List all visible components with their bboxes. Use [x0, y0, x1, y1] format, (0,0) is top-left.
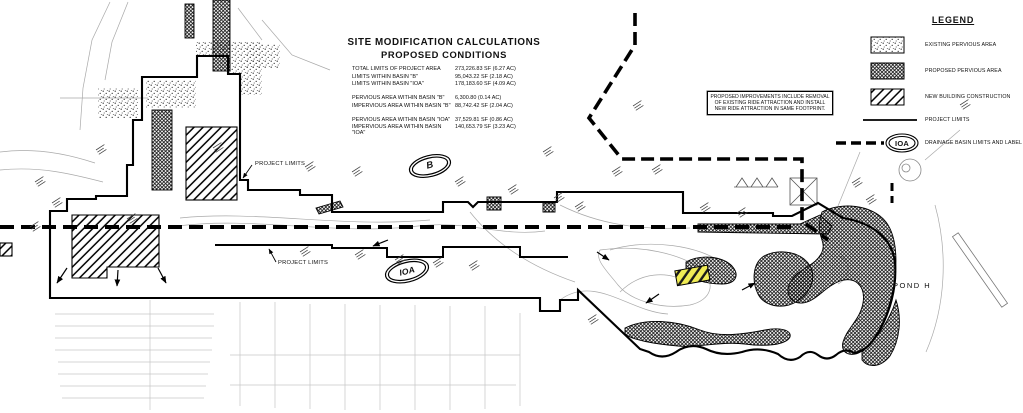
- legend-swatch-new-building: [871, 89, 904, 105]
- legend-title: LEGEND: [922, 15, 984, 25]
- legend-item-project-limits: PROJECT LIMITS: [925, 117, 970, 123]
- existing-pervious-areas: [98, 42, 280, 118]
- site-plan-drawing: [0, 0, 1023, 413]
- legend-item-drainage-basin: DRAINAGE BASIN LIMITS AND LABEL: [925, 140, 1022, 146]
- calc-label: PERVIOUS AREA WITHIN BASIN "B": [352, 95, 455, 101]
- legend-ioa-oval-label: IOA: [891, 139, 913, 148]
- legend-swatches: [836, 37, 918, 152]
- pond-h-label: POND H: [893, 281, 931, 290]
- project-limits-label-lower: PROJECT LIMITS: [278, 260, 328, 266]
- calc-label: LIMITS WITHIN BASIN "B": [352, 74, 455, 80]
- calc-row: IMPERVIOUS AREA WITHIN BASIN "IOA" 140,6…: [352, 124, 516, 136]
- project-limits-label-upper: PROJECT LIMITS: [255, 161, 305, 167]
- legend-item-existing-pervious: EXISTING PERVIOUS AREA: [925, 42, 996, 48]
- calc-value: 140,653.79 SF (3.23 AC): [455, 124, 516, 136]
- calc-row: PERVIOUS AREA WITHIN BASIN "IOA" 37,529.…: [352, 117, 513, 123]
- calc-value: 37,529.81 SF (0.86 AC): [455, 117, 513, 123]
- legend-swatch-proposed-pervious: [871, 63, 904, 79]
- calc-row: TOTAL LIMITS OF PROJECT AREA 273,226.83 …: [352, 66, 516, 72]
- calc-row: IMPERVIOUS AREA WITHIN BASIN "B" 88,742.…: [352, 103, 513, 109]
- calc-value: 178,183.60 SF (4.09 AC): [455, 81, 516, 87]
- site-plan-sheet: SITE MODIFICATION CALCULATIONS PROPOSED …: [0, 0, 1023, 413]
- project-limits-south-line: [215, 245, 568, 257]
- legend-item-proposed-pervious: PROPOSED PERVIOUS AREA: [925, 68, 1002, 74]
- calc-value: 6,300.80 (0.14 AC): [455, 95, 501, 101]
- calc-label: TOTAL LIMITS OF PROJECT AREA: [352, 66, 455, 72]
- sheet-title-line1: SITE MODIFICATION CALCULATIONS: [330, 37, 558, 48]
- calc-value: 273,226.83 SF (6.27 AC): [455, 66, 516, 72]
- calc-label: LIMITS WITHIN BASIN "IOA": [352, 81, 455, 87]
- calc-row: PERVIOUS AREA WITHIN BASIN "B" 6,300.80 …: [352, 95, 501, 101]
- note-line: NEW RIDE ATTRACTION IN SAME FOOTPRINT.: [709, 106, 831, 112]
- calc-label: PERVIOUS AREA WITHIN BASIN "IOA": [352, 117, 455, 123]
- title-block: SITE MODIFICATION CALCULATIONS PROPOSED …: [330, 37, 558, 60]
- improvements-note-box: PROPOSED IMPROVEMENTS INCLUDE REMOVAL OF…: [707, 91, 833, 115]
- calc-label: IMPERVIOUS AREA WITHIN BASIN "B": [352, 103, 455, 109]
- calc-value: 88,742.42 SF (2.04 AC): [455, 103, 513, 109]
- new-building-construction-areas: [0, 127, 237, 278]
- calc-value: 95,043.22 SF (2.18 AC): [455, 74, 513, 80]
- calc-row: LIMITS WITHIN BASIN "IOA" 178,183.60 SF …: [352, 81, 516, 87]
- parking-lines: [55, 300, 520, 410]
- calc-label: IMPERVIOUS AREA WITHIN BASIN "IOA": [352, 124, 455, 136]
- legend-item-new-building: NEW BUILDING CONSTRUCTION: [925, 94, 1011, 100]
- sheet-title-line2: PROPOSED CONDITIONS: [330, 49, 558, 60]
- calc-row: LIMITS WITHIN BASIN "B" 95,043.22 SF (2.…: [352, 74, 513, 80]
- legend-swatch-existing-pervious: [871, 37, 904, 53]
